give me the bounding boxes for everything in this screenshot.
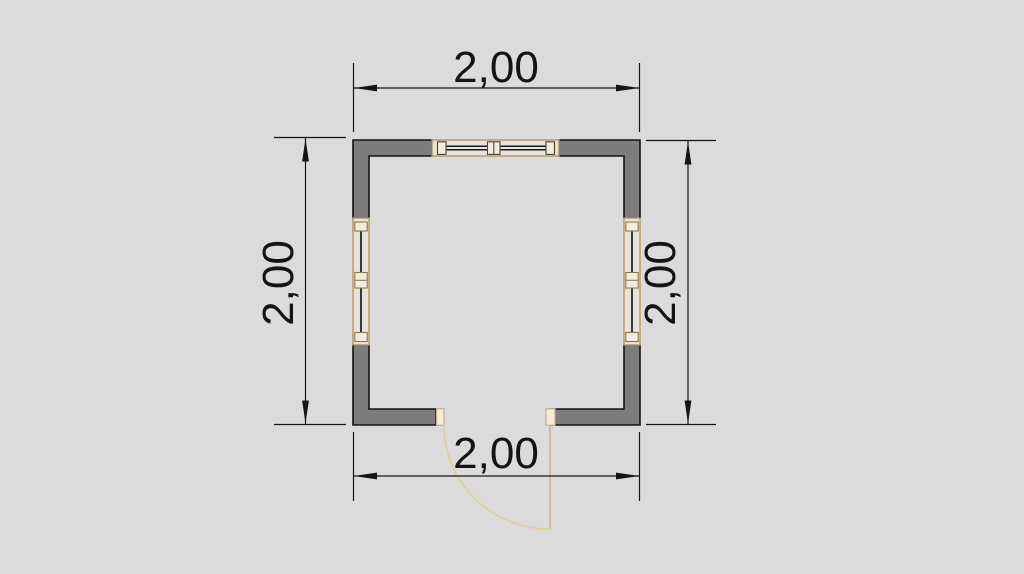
- top-window-end-block-right: [546, 142, 555, 155]
- dimension-right-label: 2,00: [636, 240, 685, 326]
- top-window-end-block-left: [438, 142, 447, 155]
- floor-plan-drawing: 2,00 2,00 2,00 2,00: [0, 0, 1024, 574]
- right-window-end-block-top: [626, 222, 638, 231]
- top-window: [432, 140, 559, 156]
- floor-plan-canvas: 2,00 2,00 2,00 2,00: [0, 0, 1024, 574]
- door-jamb-left: [437, 409, 445, 425]
- left-window-end-block-top: [355, 222, 367, 231]
- left-window-end-block-bottom: [355, 333, 367, 342]
- door-jamb-right: [546, 409, 555, 425]
- left-window: [353, 218, 369, 345]
- right-window-end-block-bottom: [626, 333, 638, 342]
- dimension-top-label: 2,00: [453, 43, 539, 92]
- dimension-bottom-label: 2,00: [453, 429, 539, 478]
- dimension-left-label: 2,00: [254, 240, 303, 326]
